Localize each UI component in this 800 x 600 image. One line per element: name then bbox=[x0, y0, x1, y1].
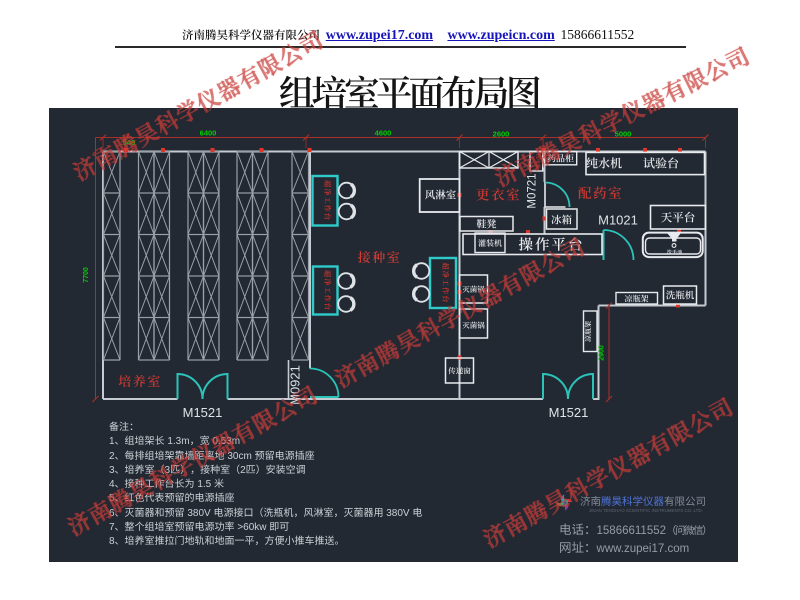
svg-text:洗瓶机: 洗瓶机 bbox=[666, 290, 695, 302]
svg-text:操作平台: 操作平台 bbox=[519, 237, 585, 254]
svg-text:超净工作台: 超净工作台 bbox=[441, 263, 450, 304]
svg-text:M0721: M0721 bbox=[527, 173, 539, 208]
svg-text:M1521: M1521 bbox=[549, 405, 589, 420]
svg-text:培养室: 培养室 bbox=[118, 374, 162, 389]
svg-text:风淋室: 风淋室 bbox=[425, 190, 457, 202]
svg-text:2900: 2900 bbox=[599, 345, 606, 361]
svg-text:M1521: M1521 bbox=[183, 405, 223, 420]
svg-text:天平台: 天平台 bbox=[661, 212, 696, 225]
svg-text:2600: 2600 bbox=[493, 130, 510, 139]
svg-text:更衣室: 更衣室 bbox=[476, 188, 521, 203]
svg-text:5000: 5000 bbox=[615, 130, 632, 139]
svg-text:配药室: 配药室 bbox=[578, 186, 623, 201]
svg-text:超净工作台: 超净工作台 bbox=[323, 180, 332, 221]
svg-text:灌装机: 灌装机 bbox=[478, 239, 502, 248]
svg-text:M0921: M0921 bbox=[288, 365, 303, 405]
svg-text:6400: 6400 bbox=[200, 129, 217, 138]
svg-text:548: 548 bbox=[123, 138, 136, 147]
svg-text:配电柜: 配电柜 bbox=[535, 154, 542, 169]
svg-text:传递窗: 传递窗 bbox=[448, 367, 471, 376]
svg-text:超净工作台: 超净工作台 bbox=[323, 270, 332, 311]
svg-text:鞋凳: 鞋凳 bbox=[477, 219, 497, 231]
svg-text:凉瓶架: 凉瓶架 bbox=[585, 321, 593, 342]
svg-text:药品柜: 药品柜 bbox=[547, 154, 574, 164]
svg-text:纯水机: 纯水机 bbox=[586, 157, 622, 171]
svg-text:接种室: 接种室 bbox=[358, 250, 402, 265]
svg-text:灭菌锅: 灭菌锅 bbox=[462, 321, 485, 330]
svg-text:洗手池: 洗手池 bbox=[667, 249, 683, 256]
svg-text:7700: 7700 bbox=[83, 267, 90, 283]
svg-text:4600: 4600 bbox=[375, 129, 392, 138]
svg-text:灭菌锅: 灭菌锅 bbox=[462, 285, 485, 294]
svg-text:M1021: M1021 bbox=[598, 213, 638, 228]
svg-text:冰箱: 冰箱 bbox=[551, 215, 572, 227]
svg-text:试验台: 试验台 bbox=[643, 157, 679, 171]
svg-text:凉瓶架: 凉瓶架 bbox=[625, 295, 649, 304]
